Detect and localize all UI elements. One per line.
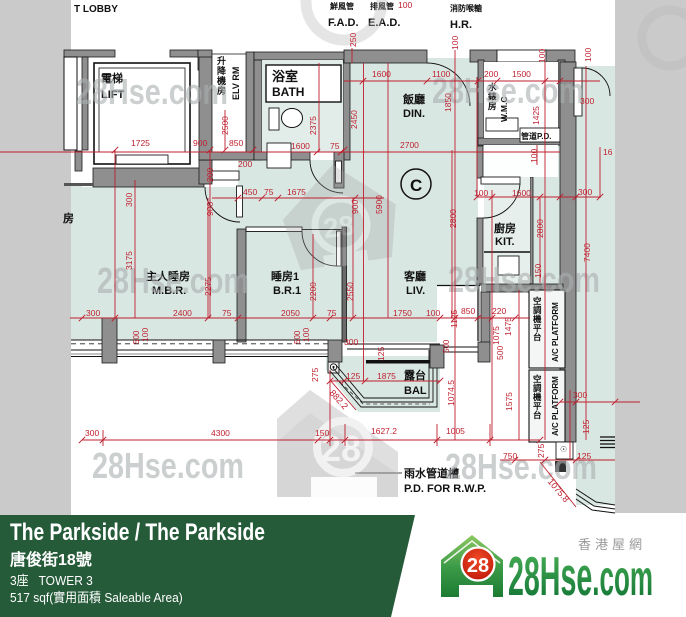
svg-text:消防喉轆: 消防喉轆 [450,3,482,13]
svg-text:850: 850 [461,306,475,316]
svg-text:500: 500 [293,330,302,344]
svg-text:A/C PLATFORM: A/C PLATFORM [551,302,560,362]
svg-text:300: 300 [573,390,587,400]
svg-text:28Hse.com: 28Hse.com [76,71,228,112]
svg-text:1600: 1600 [372,69,391,79]
svg-text:100: 100 [426,308,440,318]
svg-text:500: 500 [495,346,505,360]
svg-text:750: 750 [503,451,517,461]
svg-text:The Parkside / The Parkside: The Parkside / The Parkside [10,518,265,546]
svg-text:300: 300 [344,337,358,347]
svg-text:1075: 1075 [491,326,501,345]
svg-text:900: 900 [205,202,215,216]
svg-text:125: 125 [346,371,360,381]
svg-text:2800: 2800 [448,209,458,228]
svg-text:房: 房 [63,211,74,225]
svg-text:100: 100 [140,328,150,342]
svg-text:300: 300 [578,187,592,197]
svg-text:900: 900 [350,200,360,214]
svg-text:250: 250 [348,33,358,47]
svg-text:125: 125 [581,420,591,434]
svg-text:5900: 5900 [374,195,384,214]
svg-text:1125: 1125 [449,309,459,328]
svg-text:T LOBBY: T LOBBY [74,4,118,15]
svg-text:1074.5: 1074.5 [446,380,456,406]
svg-text:1725: 1725 [131,138,150,148]
svg-text:2700: 2700 [400,140,419,150]
svg-text:LIV.: LIV. [406,285,425,297]
svg-text:150: 150 [533,264,543,278]
svg-text:DIN.: DIN. [403,108,425,120]
svg-text:300: 300 [86,308,100,318]
svg-text:100: 100 [301,328,311,342]
svg-text:3座 TOWER 3: 3座 TOWER 3 [10,573,93,589]
svg-text:7400: 7400 [582,243,592,262]
svg-text:4300: 4300 [211,428,230,438]
svg-text:1875: 1875 [377,371,396,381]
svg-text:唐俊街18號: 唐俊街18號 [10,550,92,569]
svg-text:220: 220 [492,306,506,316]
svg-text:100: 100 [529,149,539,163]
svg-text:28Hse.com: 28Hse.com [97,260,249,301]
svg-text:28Hse.com: 28Hse.com [445,446,597,487]
svg-text:浴室: 浴室 [272,69,298,84]
svg-text:F.A.D.: F.A.D. [328,17,359,29]
svg-text:2200: 2200 [308,282,318,301]
svg-text:100: 100 [537,49,547,63]
svg-text:BAL: BAL [404,385,427,397]
svg-text:1750: 1750 [393,308,412,318]
svg-text:100: 100 [398,0,412,10]
svg-text:客廳: 客廳 [403,269,426,283]
svg-text:125: 125 [376,347,386,361]
svg-text:517 sqf(實用面積 Saleable Area): 517 sqf(實用面積 Saleable Area) [10,590,183,606]
svg-text:75: 75 [264,187,274,197]
svg-text:1425: 1425 [531,106,541,125]
svg-text:200: 200 [205,168,215,182]
svg-text:ELV RM: ELV RM [231,67,241,100]
svg-text:850: 850 [229,138,243,148]
svg-text:500: 500 [132,330,141,344]
svg-text:125: 125 [577,451,591,461]
svg-text:2375: 2375 [308,116,318,135]
svg-text:28Hse.com: 28Hse.com [448,259,600,300]
svg-text:1675: 1675 [287,187,306,197]
svg-text:150: 150 [315,428,329,438]
svg-text:管道P.D.: 管道P.D. [521,131,552,141]
svg-text:1600: 1600 [512,188,531,198]
svg-text:200: 200 [238,159,252,169]
svg-text:2050: 2050 [281,308,300,318]
svg-text:露台: 露台 [404,368,426,382]
svg-text:空調機平台: 空調機平台 [533,374,542,420]
svg-text:BATH: BATH [272,85,304,99]
svg-text:2550: 2550 [345,282,355,301]
svg-text:KIT.: KIT. [495,236,515,248]
svg-text:鮮風管: 鮮風管 [330,1,354,11]
svg-text:1600: 1600 [291,141,310,151]
svg-text:2275: 2275 [203,277,213,296]
svg-text:2400: 2400 [173,308,192,318]
svg-text:1005: 1005 [446,426,465,436]
svg-text:1475: 1475 [503,317,513,336]
svg-text:450: 450 [243,187,257,197]
svg-text:28Hse.com: 28Hse.com [508,546,653,607]
svg-text:2800: 2800 [535,219,545,238]
svg-text:1100: 1100 [432,69,451,79]
svg-text:75: 75 [327,308,337,318]
svg-text:75: 75 [330,141,340,151]
svg-text:200: 200 [484,69,498,79]
svg-text:100: 100 [474,188,488,198]
svg-text:75: 75 [222,308,232,318]
svg-text:1850: 1850 [443,93,453,112]
svg-text:1627.2: 1627.2 [371,426,397,436]
svg-text:28Hse.com: 28Hse.com [92,445,244,486]
svg-text:1500: 1500 [512,69,531,79]
svg-text:28: 28 [467,555,489,577]
svg-text:廚房: 廚房 [494,221,516,235]
svg-text:275: 275 [310,368,320,382]
svg-text:C: C [410,176,422,195]
svg-text:500: 500 [442,339,451,353]
svg-text:1575: 1575 [504,392,514,411]
svg-text:100: 100 [583,48,593,62]
svg-text:16: 16 [603,147,613,157]
svg-text:H.R.: H.R. [450,19,472,31]
svg-text:飯廳: 飯廳 [402,92,425,106]
svg-text:275: 275 [536,444,546,458]
svg-text:300: 300 [124,193,134,207]
svg-text:睡房1: 睡房1 [271,269,299,283]
svg-text:2500: 2500 [220,116,230,135]
svg-text:900: 900 [193,138,207,148]
svg-text:300: 300 [85,428,99,438]
svg-text:A/C PLATFORM: A/C PLATFORM [551,376,560,436]
svg-text:300: 300 [580,96,594,106]
svg-text:100: 100 [450,36,460,50]
svg-text:2450: 2450 [349,110,359,129]
svg-text:3175: 3175 [124,251,134,270]
svg-text:空調機平台: 空調機平台 [533,296,542,342]
svg-text:B.R.1: B.R.1 [273,285,301,297]
